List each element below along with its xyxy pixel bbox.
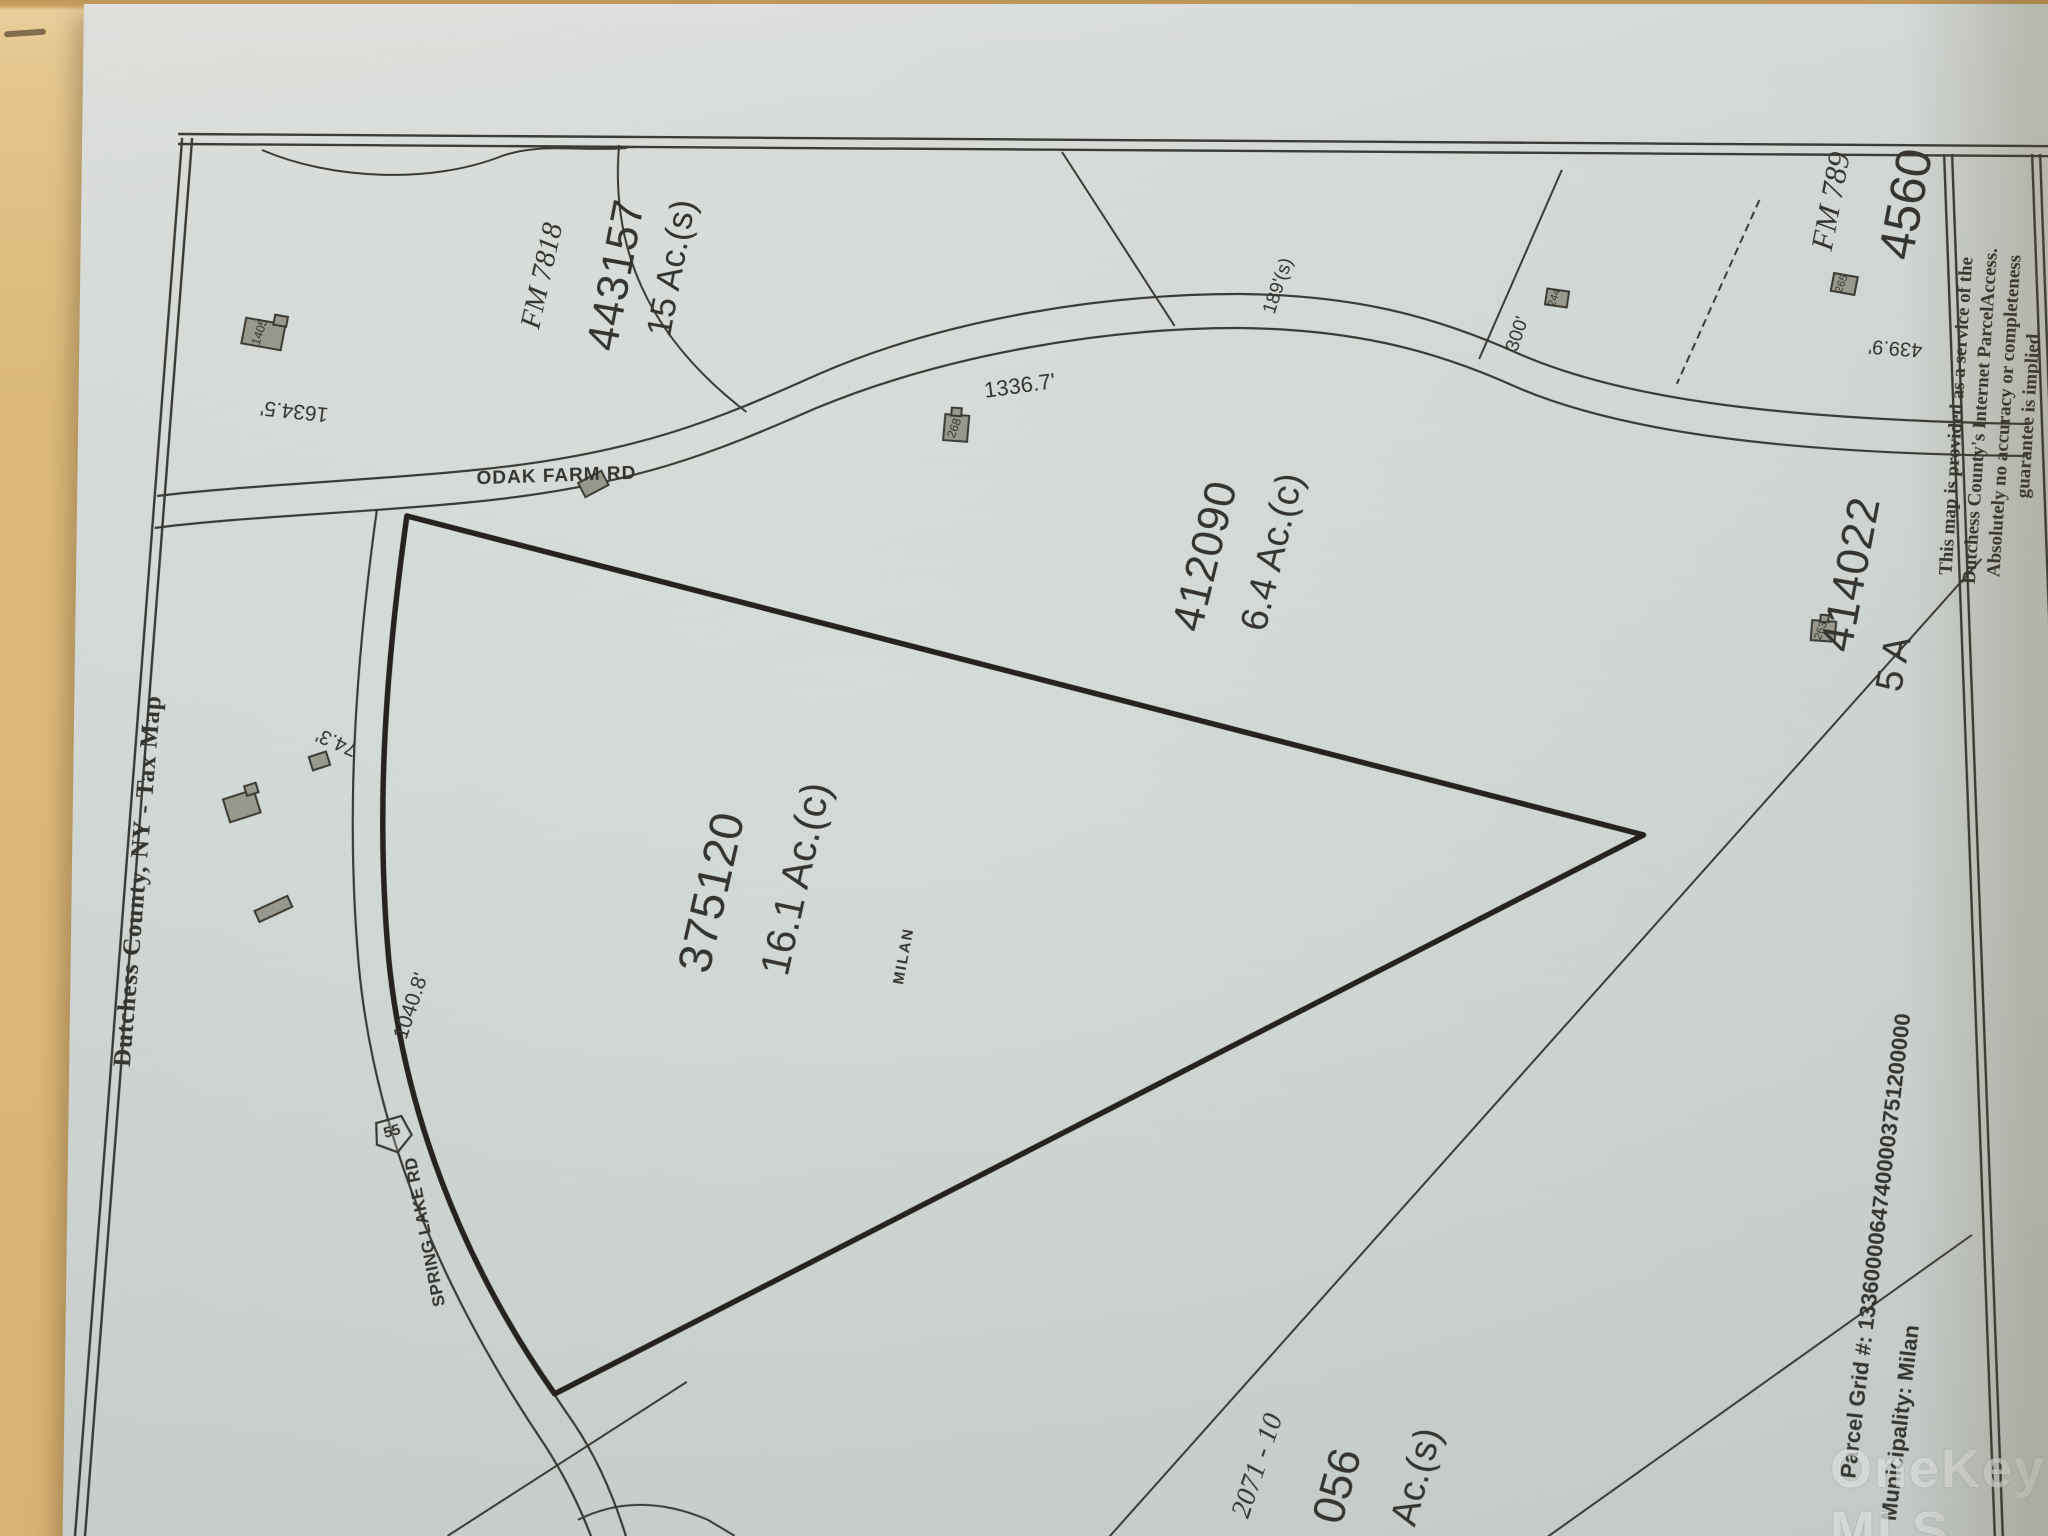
top-dip-line [262, 148, 627, 175]
paper-sheet: Dutchess County, NY - Tax Map FM 7818 44… [60, 4, 2048, 1536]
tax-map-photo: Dutchess County, NY - Tax Map FM 7818 44… [0, 0, 2048, 1536]
parcel-lines [242, 145, 1987, 1536]
odak-farm-road-north-line [157, 294, 2030, 496]
bottom-curve-line [578, 1505, 735, 1536]
odak-farm-road-south-line [155, 328, 2030, 528]
map-lines [60, 4, 2048, 1536]
diagonal-line-dashed [1677, 200, 1760, 384]
dimension-439: 439.9' [1868, 336, 1923, 360]
roads [138, 294, 2030, 1536]
long-diagonal-line [1062, 559, 1981, 1536]
building-icon-cluster-b [309, 751, 330, 770]
building-icon-barn [255, 896, 293, 922]
desk-mark [4, 29, 46, 38]
bottom-left-line [448, 1382, 687, 1536]
parcel-414022-acreage-partial: 5 A [1870, 634, 1918, 695]
onekey-mls-watermark: OneKey MLS [1830, 1438, 2046, 1536]
parcel-375120-boundary [375, 516, 1648, 1394]
map-border [60, 134, 2048, 1536]
spring-lake-road-west-line [340, 509, 647, 1536]
building-icon-cluster-a [221, 783, 264, 823]
